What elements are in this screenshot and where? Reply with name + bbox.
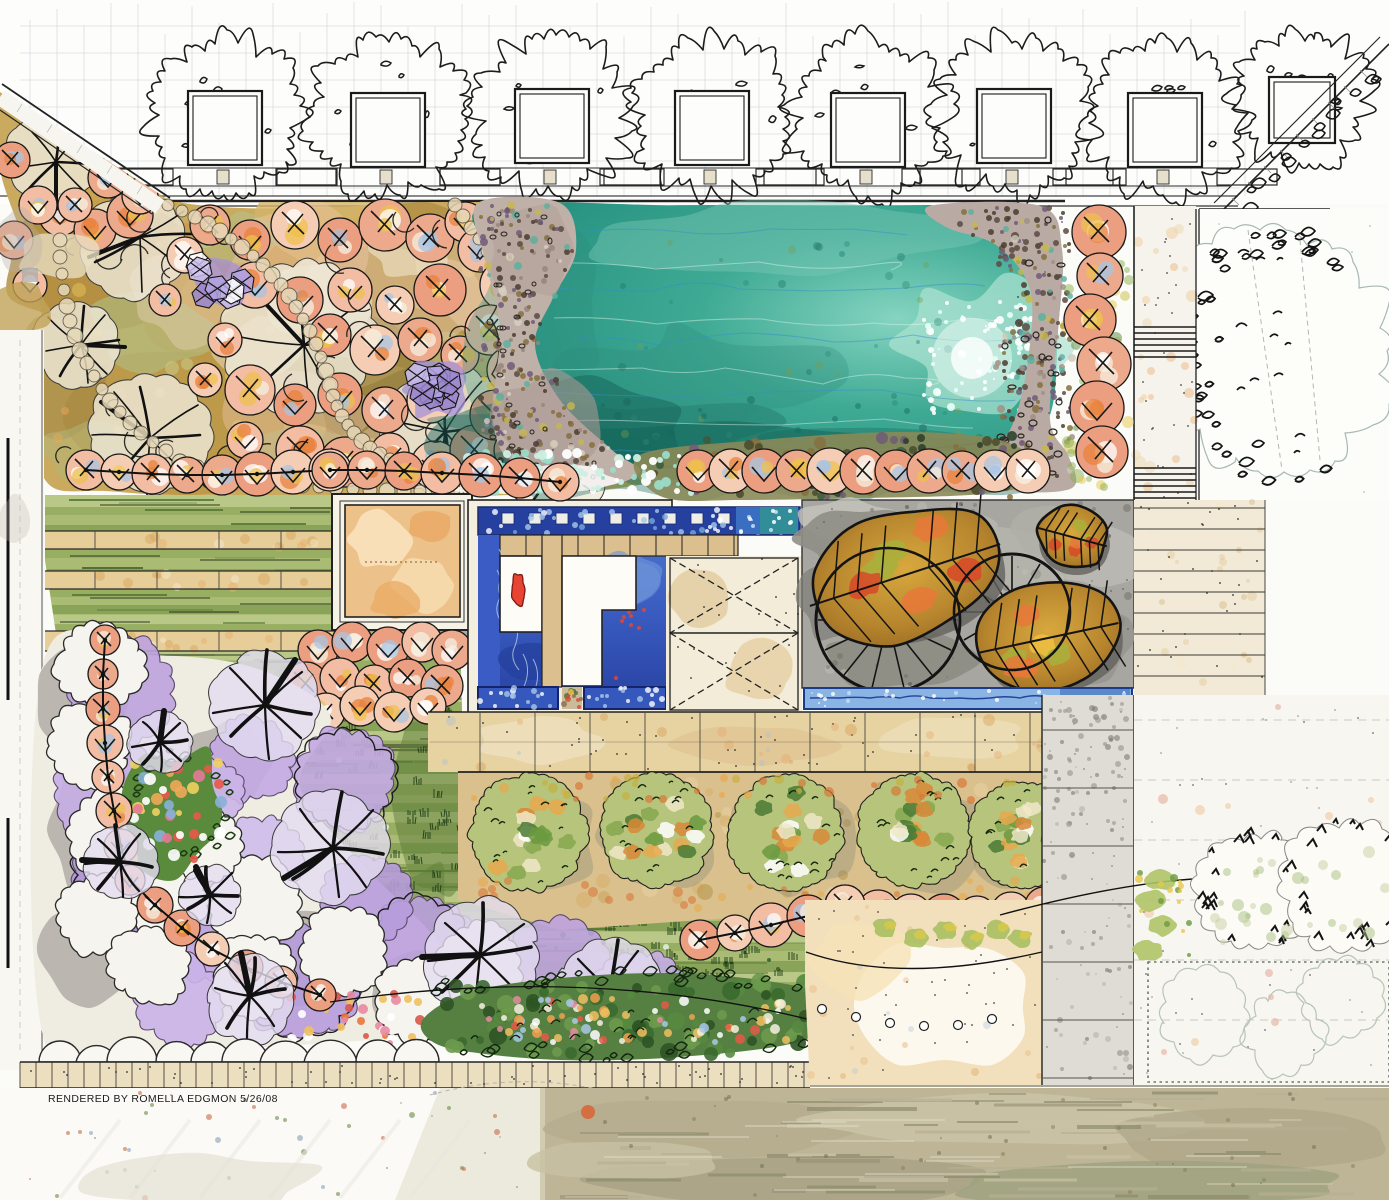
svg-text:RENDERED BY ROMELLA EDGMON 5/2: RENDERED BY ROMELLA EDGMON 5/26/08 xyxy=(48,1093,278,1105)
